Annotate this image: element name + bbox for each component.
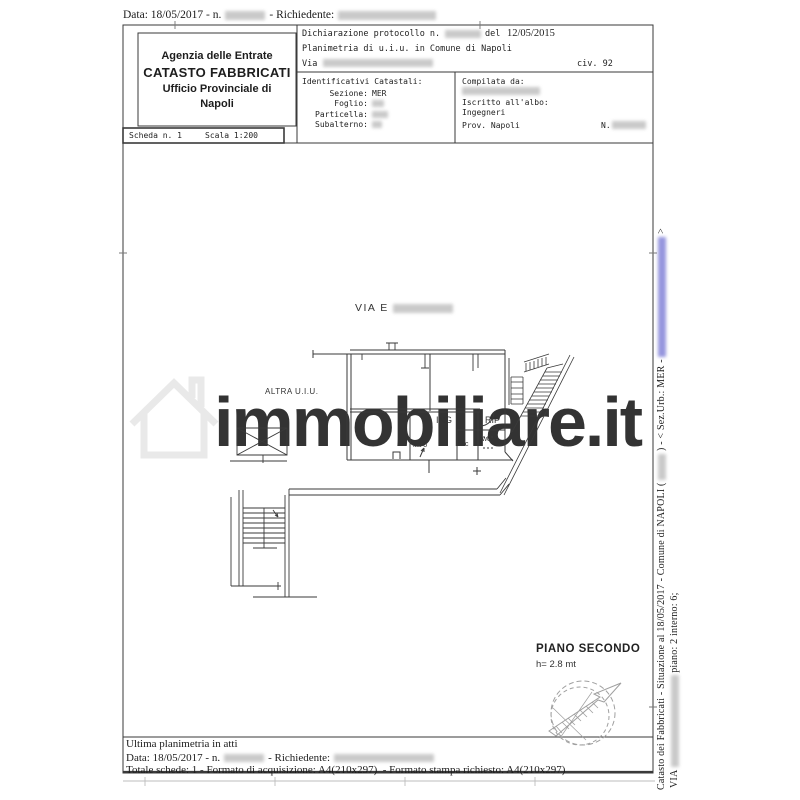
label-room-rip: RIP	[485, 415, 500, 425]
redacted-foglio-value	[372, 100, 384, 107]
floor-name: PIANO SECONDO	[536, 643, 640, 655]
subalterno-label: Subalterno:	[300, 120, 368, 129]
declaration-del: del	[485, 29, 500, 39]
sidebar-line2: VIA piano: 2 interno: 6;	[669, 592, 680, 788]
redacted-comune-code	[658, 454, 666, 480]
sidebar-line2-a: VIA	[669, 770, 680, 788]
declaration-via-label: Via	[302, 59, 317, 69]
cadastral-row-sezione: Sezione: MER	[300, 89, 386, 98]
scala-label: Scala 1:200	[205, 131, 258, 140]
sidebar-line1-c: >	[656, 228, 667, 234]
label-unit-int6: int 6	[413, 440, 427, 449]
footer-richiedente-label: - Richiedente:	[268, 752, 330, 764]
watermark-logo	[132, 380, 216, 455]
redacted-street-sidebar	[671, 675, 679, 767]
redacted-footer-number	[224, 754, 264, 762]
footer-totale: Totale schede: 1 - Formato di acquisizio…	[126, 764, 565, 776]
declaration-protocol-label: Dichiarazione protocollo n.	[302, 29, 440, 39]
sidebar-line2-b: piano: 2 interno: 6;	[669, 592, 680, 672]
redacted-register-number	[612, 121, 646, 129]
corridor	[289, 478, 509, 495]
sidebar-line1-a: Catasto dei Fabbricati - Situazione al 1…	[656, 482, 667, 790]
footer-data-line: Data: 18/05/2017 - n. - Richiedente:	[126, 752, 434, 764]
register-label: Iscritto all'albo:	[462, 98, 549, 107]
street-label: VIA E	[355, 302, 453, 314]
plan-drawing: immobiliare.it	[0, 0, 800, 800]
n-label: N.	[601, 121, 611, 130]
railing-ticks	[524, 354, 549, 372]
cadastral-row-subalterno: Subalterno:	[300, 120, 382, 129]
redacted-cadastral-refs	[658, 237, 666, 357]
redacted-declaration-number	[445, 30, 481, 38]
foglio-label: Foglio:	[300, 99, 368, 108]
declaration-object: Planimetria di u.i.u. in Comune di Napol…	[302, 44, 512, 54]
label-altra-uiu: ALTRA U.I.U.	[265, 387, 318, 396]
redacted-street-plan	[393, 304, 453, 313]
agency-header: Agenzia delle Entrate CATASTO FABBRICATI…	[138, 33, 296, 126]
footer-date-label: Data: 18/05/2017 - n.	[126, 752, 220, 764]
floor-caption: PIANO SECONDO h= 2.8 mt	[536, 643, 640, 670]
redacted-subalterno-value	[372, 121, 382, 128]
stairwell	[231, 489, 317, 597]
redacted-particella-value	[372, 111, 388, 118]
bottom-edge-marks	[123, 777, 655, 786]
particella-label: Particella:	[300, 110, 368, 119]
register-value: Ingegneri	[462, 108, 505, 117]
stairs-arrow	[273, 510, 278, 517]
prov-label: Prov. Napoli	[462, 121, 520, 130]
agency-line1: Agenzia delle Entrate	[138, 50, 296, 62]
redacted-street-name	[323, 59, 433, 67]
label-room-wc2: wc	[481, 436, 491, 443]
compiled-by-label: Compilata da:	[462, 77, 525, 86]
sezione-value: MER	[372, 89, 386, 98]
label-room-wc1: wc	[459, 441, 469, 448]
sezione-label: Sezione:	[300, 89, 368, 98]
cadastral-title: Identificativi Catastali:	[302, 77, 422, 86]
cadastral-floor-plan-document: Data: 18/05/2017 - n. - Richiedente: imm…	[0, 0, 800, 800]
redacted-compiler-name	[462, 87, 540, 95]
street-via-text: VIA E	[355, 302, 389, 314]
redacted-footer-requester	[334, 754, 434, 762]
declaration-civ: civ. 92	[577, 59, 613, 69]
declaration-date: 12/05/2015	[507, 28, 555, 39]
label-room-ing: ING	[436, 415, 452, 425]
footer-ultima: Ultima planimetria in atti	[126, 738, 238, 750]
agency-line4: Napoli	[138, 98, 296, 110]
agency-line2: CATASTO FABBRICATI	[138, 65, 296, 80]
sidebar-line1: Catasto dei Fabbricati - Situazione al 1…	[656, 228, 667, 790]
scheda-label: Scheda n. 1	[129, 131, 182, 140]
sidebar-line1-b: ) - < Sez.Urb.: MER -	[656, 359, 667, 451]
cadastral-row-foglio: Foglio:	[300, 99, 384, 108]
floor-height: h= 2.8 mt	[536, 659, 640, 670]
compass-rose	[549, 681, 621, 745]
cadastral-row-particella: Particella:	[300, 110, 388, 119]
agency-line3: Ufficio Provinciale di	[138, 83, 296, 95]
